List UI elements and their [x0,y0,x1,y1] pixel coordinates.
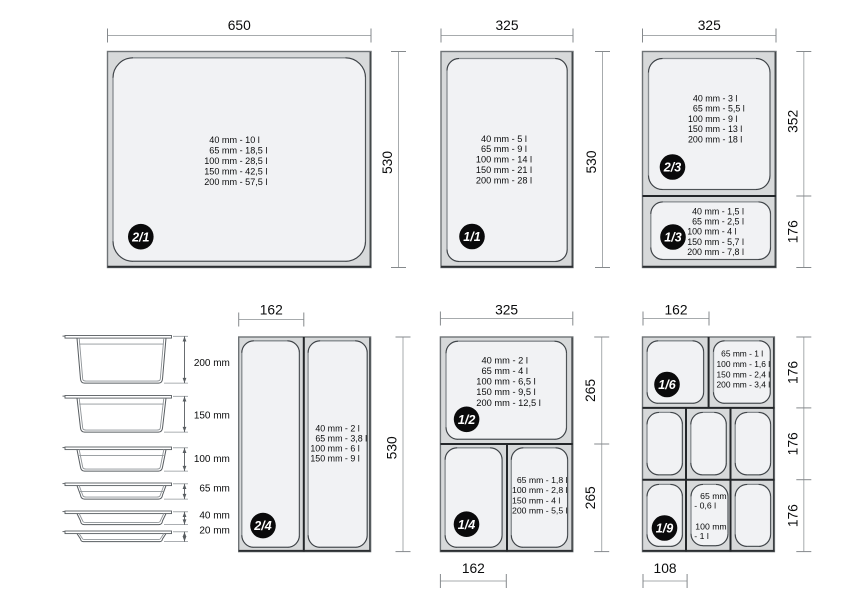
svg-text:530: 530 [385,436,400,459]
svg-text:mm: mm [213,358,230,369]
svg-text:mm - 6 l: mm - 6 l [328,443,360,453]
svg-text:mm - 6,5 l: mm - 6,5 l [494,377,535,387]
svg-text:mm - 2 l: mm - 2 l [328,424,360,434]
svg-text:mm: mm [213,525,230,536]
svg-text:20: 20 [199,525,211,536]
svg-text:150: 150 [204,167,219,177]
svg-text:100: 100 [687,227,702,237]
svg-text:mm: mm [213,454,230,465]
svg-text:150: 150 [688,124,703,134]
svg-text:100: 100 [476,377,492,387]
svg-text:mm - 9,5 l: mm - 9,5 l [494,387,535,397]
svg-text:2/1: 2/1 [131,230,149,244]
svg-text:200: 200 [687,247,702,257]
svg-text:176: 176 [785,432,800,455]
svg-text:530: 530 [380,151,395,174]
svg-text:150: 150 [476,165,491,175]
svg-text:mm: mm [213,410,230,421]
svg-text:1/9: 1/9 [656,522,673,536]
svg-text:40: 40 [692,207,702,217]
svg-text:530: 530 [584,150,599,173]
svg-text:150: 150 [194,410,211,421]
svg-text:176: 176 [785,504,800,527]
svg-text:mm: mm [712,491,726,501]
svg-text:162: 162 [664,303,687,318]
svg-text:65: 65 [481,366,491,376]
svg-text:2/3: 2/3 [663,161,681,175]
svg-text:265: 265 [583,379,598,402]
svg-text:40: 40 [315,424,325,434]
svg-text:65: 65 [209,146,219,156]
svg-text:65: 65 [692,217,702,227]
svg-text:40: 40 [481,134,491,144]
svg-text:mm - 3,4 l: mm - 3,4 l [733,380,770,390]
svg-text:200: 200 [204,177,219,187]
svg-text:mm: mm [213,483,230,494]
svg-text:1/6: 1/6 [658,378,676,392]
svg-text:- 0,6 l: - 0,6 l [694,501,716,511]
svg-text:200: 200 [688,134,703,144]
svg-text:265: 265 [583,486,598,509]
svg-text:1/1: 1/1 [463,230,480,244]
svg-text:mm - 5,7 l: mm - 5,7 l [704,237,743,247]
svg-text:176: 176 [785,220,800,243]
svg-text:mm - 10 l: mm - 10 l [222,135,260,145]
svg-text:mm - 18 l: mm - 18 l [705,134,742,144]
svg-text:200: 200 [476,398,492,408]
svg-text:mm - 9 l: mm - 9 l [328,453,360,463]
svg-text:325: 325 [698,18,721,33]
svg-text:100: 100 [512,485,527,495]
svg-text:100: 100 [695,522,710,532]
svg-text:65: 65 [199,483,211,494]
svg-text:mm - 7,8 l: mm - 7,8 l [704,247,743,257]
svg-text:150: 150 [476,387,492,397]
svg-text:mm - 1,5 l: mm - 1,5 l [704,207,743,217]
svg-text:65: 65 [481,144,491,154]
svg-text:mm - 57,5 l: mm - 57,5 l [222,177,267,187]
svg-text:mm - 13 l: mm - 13 l [705,124,742,134]
svg-text:100: 100 [310,443,325,453]
svg-text:mm - 42,5 l: mm - 42,5 l [222,167,267,177]
svg-text:mm - 5,5 l: mm - 5,5 l [529,505,568,515]
svg-text:150: 150 [717,369,731,379]
svg-text:mm - 12,5 l: mm - 12,5 l [494,398,540,408]
svg-text:65: 65 [315,433,325,443]
svg-text:2/4: 2/4 [253,519,271,533]
svg-text:325: 325 [495,18,518,33]
svg-text:650: 650 [228,18,251,33]
svg-text:176: 176 [785,361,800,384]
svg-text:200: 200 [476,175,491,185]
svg-text:162: 162 [462,561,485,576]
svg-text:mm - 2,4 l: mm - 2,4 l [733,369,770,379]
svg-text:mm - 4 l: mm - 4 l [529,495,560,505]
svg-text:mm - 1 l: mm - 1 l [733,349,763,359]
svg-text:150: 150 [512,495,527,505]
svg-text:40: 40 [209,135,219,145]
svg-text:mm - 9 l: mm - 9 l [705,114,737,124]
svg-text:mm - 28 l: mm - 28 l [494,175,532,185]
svg-text:40: 40 [199,511,211,522]
svg-text:100: 100 [194,454,211,465]
svg-text:mm - 28,5 l: mm - 28,5 l [222,156,267,166]
svg-text:mm - 4 l: mm - 4 l [704,227,736,237]
svg-text:200: 200 [512,505,527,515]
svg-text:mm - 14 l: mm - 14 l [494,155,532,165]
svg-text:mm - 9 l: mm - 9 l [494,144,527,154]
svg-text:mm - 1,8 l: mm - 1,8 l [529,475,568,485]
svg-text:100: 100 [476,155,491,165]
svg-text:108: 108 [654,561,677,576]
svg-text:mm - 3 l: mm - 3 l [705,93,737,103]
svg-text:mm - 1,6 l: mm - 1,6 l [733,359,770,369]
svg-text:mm - 2,8 l: mm - 2,8 l [529,485,568,495]
svg-text:325: 325 [495,303,518,318]
svg-text:mm - 21 l: mm - 21 l [494,165,532,175]
svg-text:mm - 3,8 l: mm - 3,8 l [328,433,367,443]
svg-text:40: 40 [481,355,491,365]
svg-text:- 1 l: - 1 l [694,531,709,541]
svg-text:mm: mm [213,511,230,522]
svg-text:40: 40 [693,93,703,103]
svg-text:1/3: 1/3 [664,231,681,245]
svg-text:mm: mm [712,522,726,532]
svg-text:65: 65 [700,491,710,501]
svg-text:mm - 5,5 l: mm - 5,5 l [705,104,744,114]
svg-text:150: 150 [310,453,325,463]
svg-text:1/4: 1/4 [458,518,475,532]
svg-text:352: 352 [785,110,800,133]
svg-text:150: 150 [687,237,702,247]
svg-text:65: 65 [693,104,703,114]
svg-text:162: 162 [260,303,283,318]
svg-text:200: 200 [194,358,211,369]
svg-text:65: 65 [721,349,731,359]
svg-text:mm - 4 l: mm - 4 l [494,366,528,376]
svg-text:100: 100 [204,156,219,166]
svg-text:mm - 5 l: mm - 5 l [494,134,527,144]
svg-text:200: 200 [717,380,731,390]
svg-text:1/2: 1/2 [458,413,475,427]
svg-text:100: 100 [688,114,703,124]
svg-text:mm - 2,5 l: mm - 2,5 l [704,217,743,227]
svg-text:65: 65 [517,475,527,485]
svg-text:100: 100 [717,359,731,369]
svg-text:mm - 18,5 l: mm - 18,5 l [222,146,267,156]
svg-text:mm - 2 l: mm - 2 l [494,355,528,365]
